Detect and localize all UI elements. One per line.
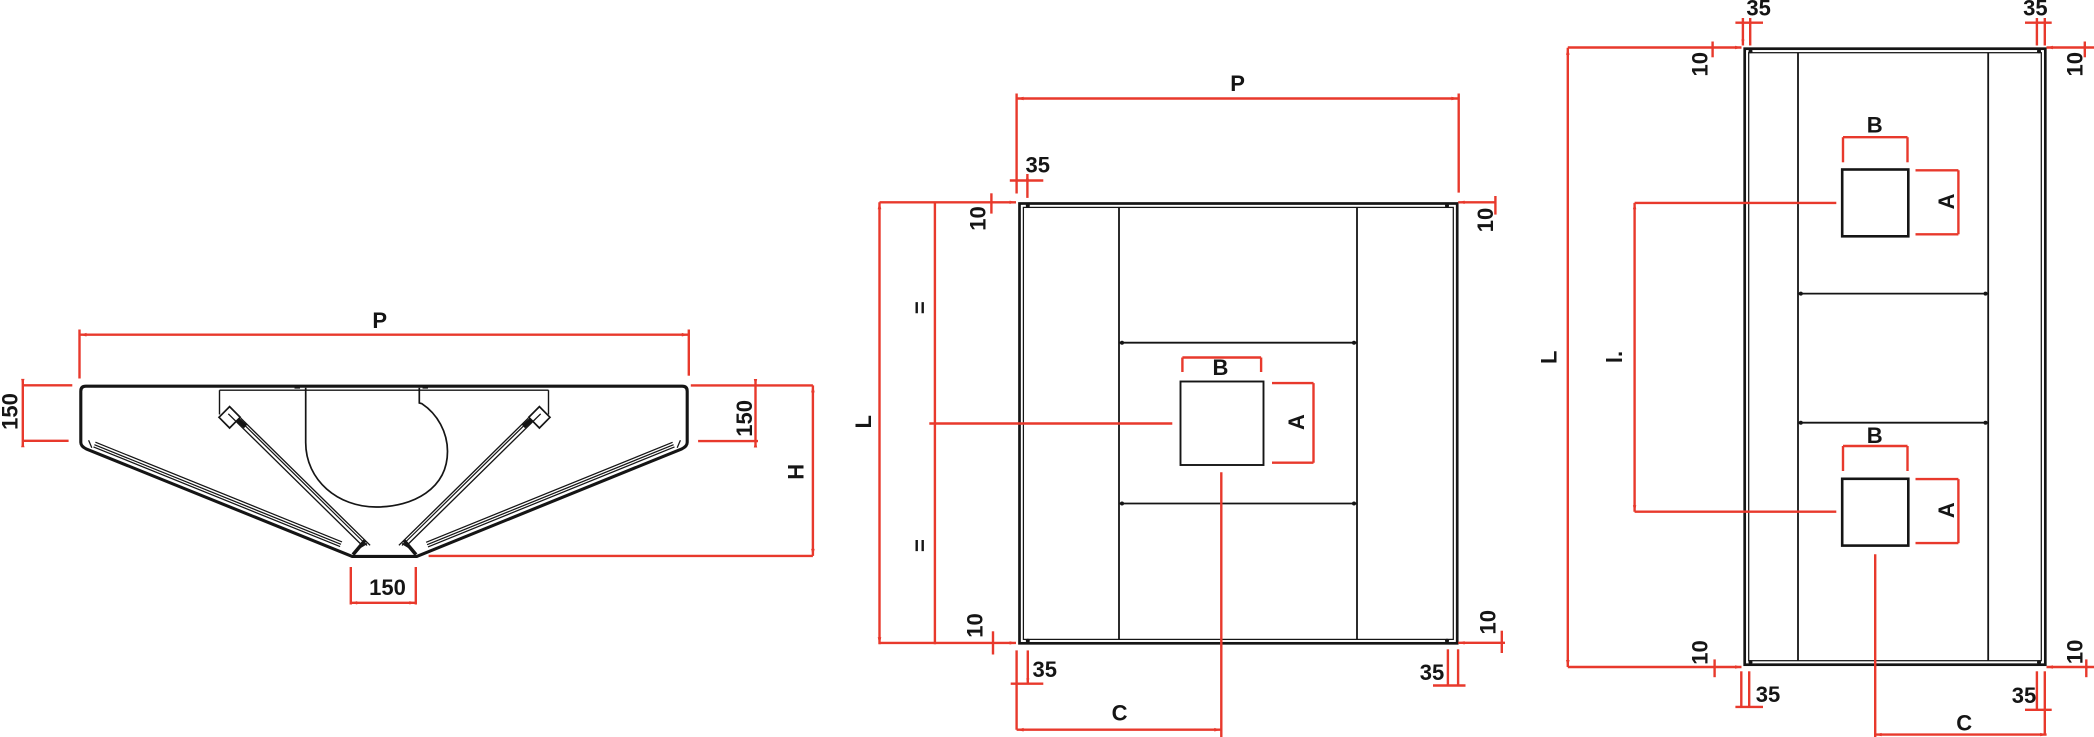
svg-text:=: = xyxy=(908,301,933,314)
svg-text:C: C xyxy=(1112,701,1128,726)
svg-text:35: 35 xyxy=(1420,660,1444,685)
svg-text:10: 10 xyxy=(966,206,991,230)
svg-text:10: 10 xyxy=(1688,52,1713,76)
svg-text:A: A xyxy=(1934,193,1959,209)
svg-text:10: 10 xyxy=(1473,208,1498,232)
svg-text:35: 35 xyxy=(2023,0,2047,21)
svg-text:10: 10 xyxy=(2063,640,2088,664)
svg-text:35: 35 xyxy=(1032,657,1056,682)
svg-text:C: C xyxy=(1956,711,1972,736)
svg-text:P: P xyxy=(1230,71,1245,96)
svg-text:10: 10 xyxy=(963,613,988,637)
svg-text:L: L xyxy=(1537,351,1562,364)
svg-text:l.: l. xyxy=(1602,351,1627,363)
svg-text:35: 35 xyxy=(1025,153,1049,178)
svg-text:10: 10 xyxy=(2063,52,2088,76)
svg-text:=: = xyxy=(908,539,933,552)
svg-text:150: 150 xyxy=(732,400,757,437)
svg-text:B: B xyxy=(1213,355,1229,380)
svg-text:H: H xyxy=(784,464,809,480)
svg-text:35: 35 xyxy=(1746,0,1770,21)
svg-text:10: 10 xyxy=(1476,610,1501,634)
svg-text:A: A xyxy=(1284,414,1309,430)
svg-text:B: B xyxy=(1867,423,1883,448)
svg-text:L: L xyxy=(851,415,876,428)
svg-text:P: P xyxy=(372,308,387,333)
svg-text:10: 10 xyxy=(1688,640,1713,664)
svg-text:35: 35 xyxy=(1756,682,1780,707)
svg-text:A: A xyxy=(1934,502,1959,518)
svg-text:35: 35 xyxy=(2012,683,2036,708)
svg-text:150: 150 xyxy=(369,575,406,600)
svg-text:150: 150 xyxy=(0,393,23,430)
svg-text:B: B xyxy=(1867,113,1883,138)
